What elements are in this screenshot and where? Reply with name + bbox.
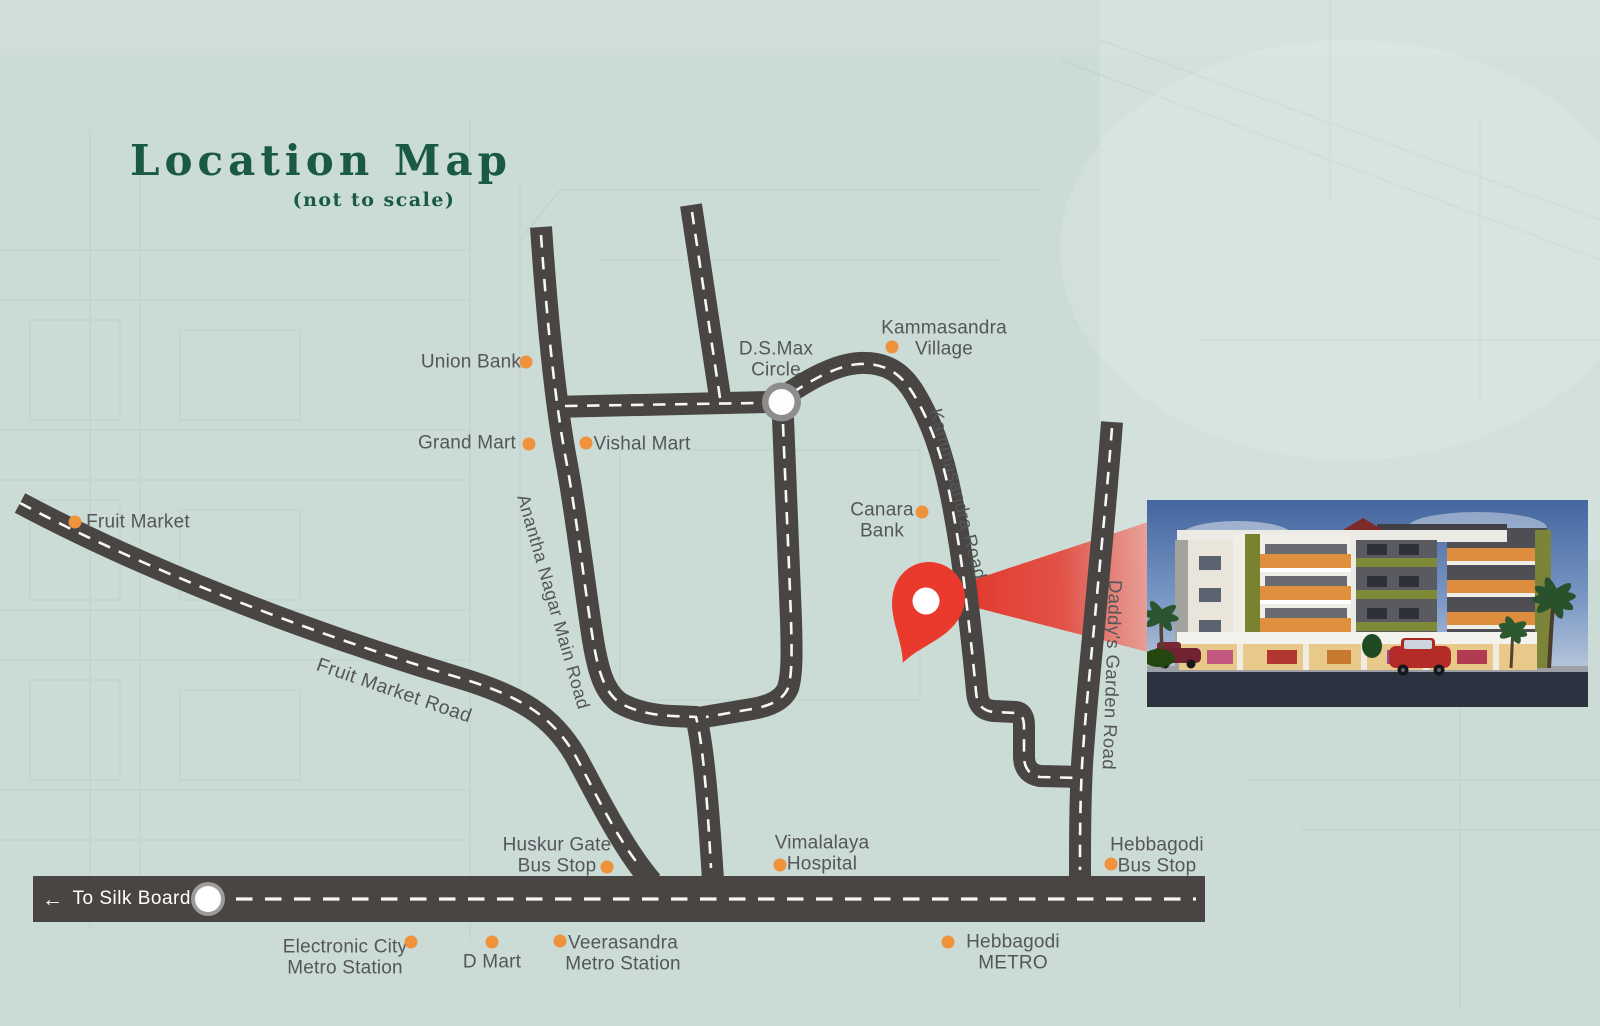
to-silk-board-text: To Silk Board [73,888,191,910]
label-canara-bank: Canara Bank [850,500,914,543]
label-hebbagodi-metro: Hebbagodi METRO [966,932,1060,975]
photo-small-tree [1362,634,1382,658]
light-wash [0,0,1600,560]
label-fruit-market: Fruit Market [86,511,190,532]
dsmax-circle-node [762,383,801,422]
road-fruit-market [20,503,652,882]
marker-union-bank [520,356,533,369]
marker-kammasandra-village [886,341,899,354]
marker-fruit-market [69,516,82,529]
label-hebbagodi-bus-stop: Hebbagodi Bus Stop [1110,835,1204,878]
label-veerasandra-metro: Veerasandra Metro Station [565,933,681,976]
label-vimalalaya-hospital: Vimalalaya Hospital [775,833,870,876]
label-grand-mart: Grand Mart [418,432,516,453]
marker-vimalalaya-hospital [774,859,787,872]
page-title: Location Map [130,136,512,185]
marker-d-mart [486,936,499,949]
marker-vishal-mart [580,437,593,450]
to-silk-board: ← To Silk Board [42,888,191,910]
marker-huskur-gate-bus-stop [601,861,614,874]
silk-board-circle-node [191,882,225,916]
marker-veerasandra-metro [554,935,567,948]
marker-electronic-city-metro [405,936,418,949]
road-anantha-nagar [541,227,713,880]
marker-hebbagodi-metro [942,936,955,949]
marker-grand-mart [523,438,536,451]
photo-retail-shops [1179,644,1537,670]
left-arrow-icon: ← [42,889,64,910]
project-photo [1147,500,1588,707]
location-map-poster: Location Map (not to scale) Fruit Market… [0,0,1600,1026]
marker-canara-bank [916,506,929,519]
label-huskur-gate-bus-stop: Huskur Gate Bus Stop [503,835,612,878]
label-electronic-city-metro: Electronic City Metro Station [283,937,407,980]
road-circle-branch [698,418,792,718]
marker-hebbagodi-bus-stop [1105,858,1118,871]
label-kammasandra-village: Kammasandra Village [881,318,1007,361]
page-subtitle: (not to scale) [293,189,456,211]
label-vishal-mart: Vishal Mart [594,433,691,454]
photo-street [1147,670,1588,707]
label-d-mart: D Mart [463,951,521,972]
label-dsmax-circle: D.S.Max Circle [739,339,813,382]
label-union-bank: Union Bank [421,351,521,372]
